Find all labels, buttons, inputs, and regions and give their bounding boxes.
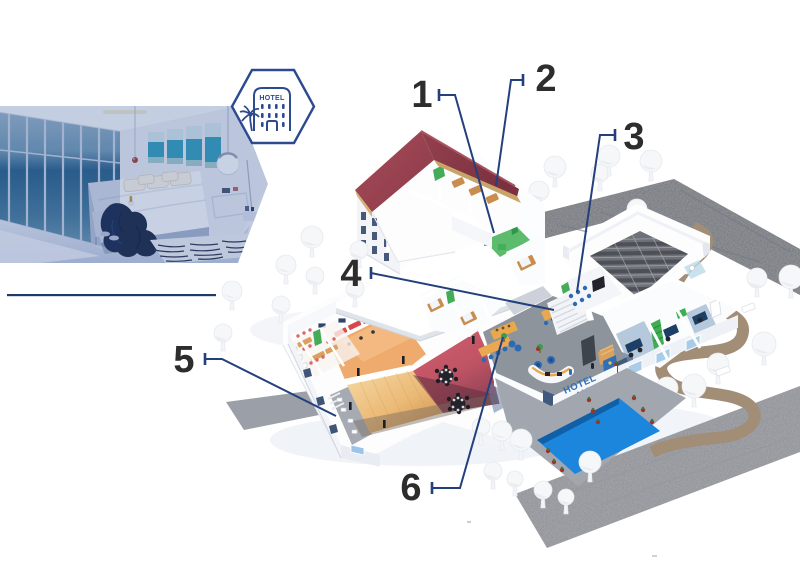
- svg-text:3: 3: [623, 116, 644, 158]
- svg-text:1: 1: [411, 74, 432, 116]
- svg-text:6: 6: [400, 467, 421, 509]
- svg-text:5: 5: [173, 339, 194, 381]
- svg-text:HOTEL: HOTEL: [259, 95, 285, 102]
- svg-text:2: 2: [535, 58, 556, 100]
- svg-text:4: 4: [340, 253, 361, 295]
